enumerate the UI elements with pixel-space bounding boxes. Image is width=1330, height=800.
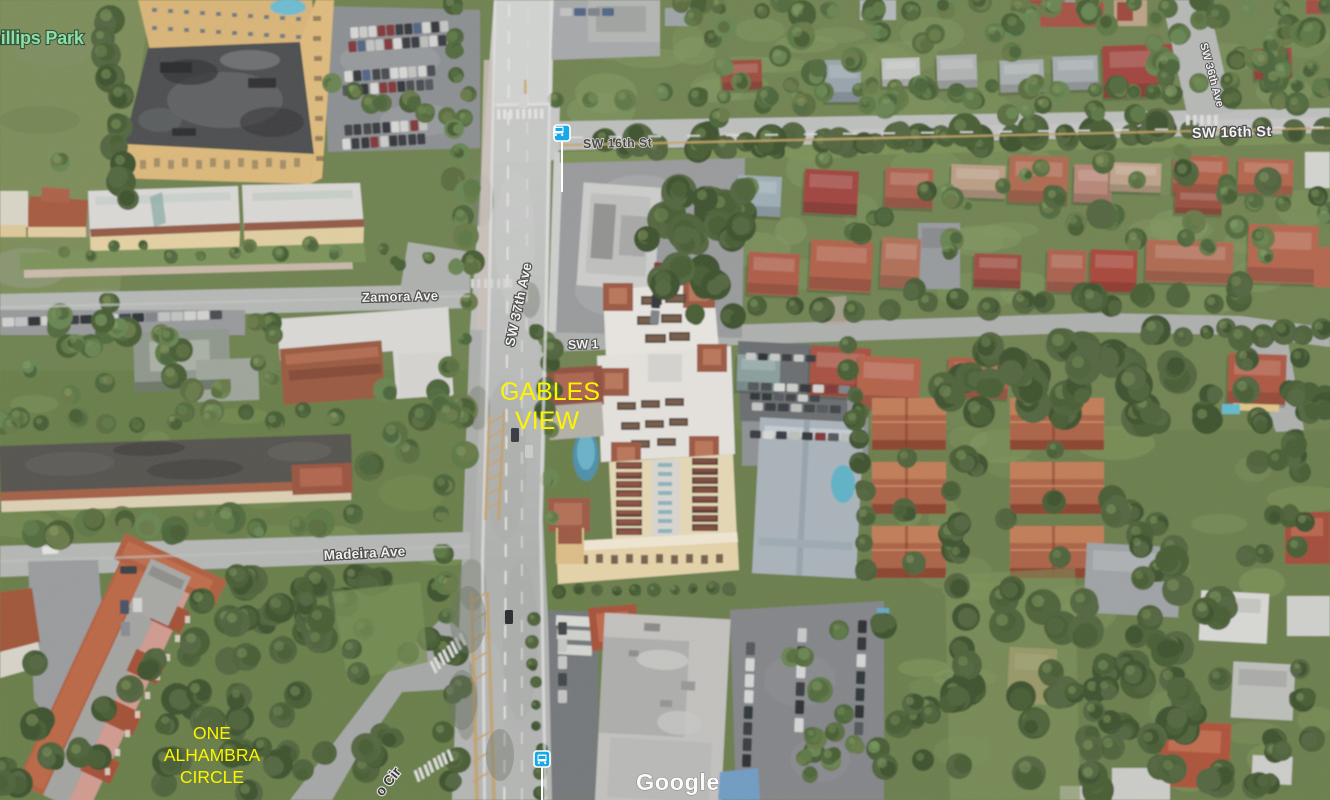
svg-text:Zamora Ave: Zamora Ave [362, 288, 439, 305]
svg-text:Google: Google [636, 769, 720, 795]
svg-text:VIEW: VIEW [515, 407, 579, 435]
svg-text:hillips Park: hillips Park [0, 28, 85, 48]
svg-text:ONE: ONE [193, 723, 231, 743]
svg-text:SW 16th St: SW 16th St [583, 136, 653, 151]
svg-text:CIRCLE: CIRCLE [180, 767, 244, 787]
svg-text:ALHAMBRA: ALHAMBRA [164, 745, 261, 765]
svg-text:SW 1: SW 1 [568, 337, 599, 352]
svg-text:SW 16th St: SW 16th St [1192, 124, 1272, 142]
svg-text:GABLES: GABLES [500, 378, 600, 406]
